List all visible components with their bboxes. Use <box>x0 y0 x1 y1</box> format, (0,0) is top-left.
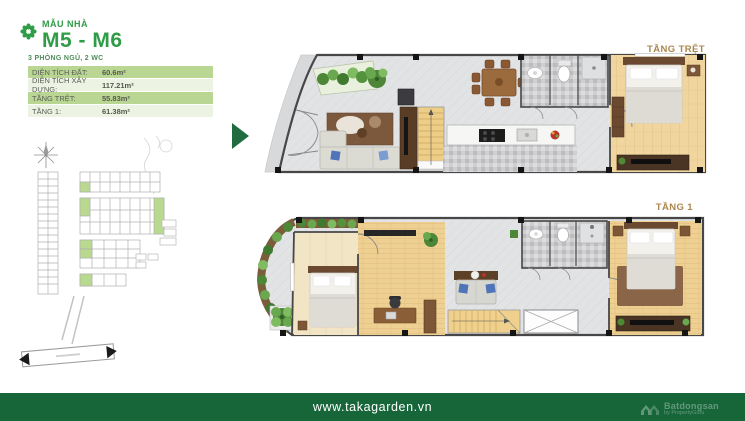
spec-row-first-floor: TẦNG 1: 61.38m² <box>28 105 213 117</box>
closet <box>424 300 436 333</box>
plot-strip-b <box>80 198 164 234</box>
spec-label: TẦNG TRỆT: <box>28 94 102 103</box>
plant <box>683 319 690 326</box>
highlighted-plot <box>80 198 90 216</box>
laptop <box>386 312 396 319</box>
spec-row-ground-floor: TẦNG TRỆT: 55.83m² <box>28 92 213 104</box>
entry-direction-arrow <box>232 123 249 149</box>
master-bedroom <box>609 221 701 335</box>
first-floor-label: TẦNG 1 <box>555 202 693 213</box>
plant <box>619 158 626 165</box>
nightstand <box>680 226 690 236</box>
pillow <box>656 68 678 79</box>
highlighted-plot <box>154 198 164 234</box>
nightstand <box>298 321 307 330</box>
first-floor-plan <box>256 216 707 340</box>
terrace-palm-plant <box>270 306 294 330</box>
toilet <box>558 66 570 82</box>
tv <box>404 117 408 155</box>
pillow <box>485 283 495 293</box>
compass-star-icon <box>34 142 58 168</box>
toilet <box>558 228 569 242</box>
spec-value: 61.38m² <box>102 107 130 116</box>
tv-media-wall <box>400 107 417 169</box>
header: MẪU NHÀ M5 - M6 3 PHÒNG NGỦ, 2 WC DIỆN T… <box>20 20 220 118</box>
spec-value: 60.6m² <box>102 68 126 77</box>
hallway <box>358 222 445 335</box>
tv <box>630 320 674 325</box>
window <box>635 54 685 57</box>
void-opening <box>524 310 578 333</box>
bed <box>308 266 358 327</box>
watermark-text: Batdongsan by PropertyGuru <box>664 402 719 417</box>
tv-cabinet <box>617 155 689 170</box>
footer-bar: www.takagarden.vn Batdongsan by Property… <box>0 393 745 421</box>
spec-table: DIỆN TÍCH ĐẤT: 60.6m² DIỆN TÍCH XÂY DỰNG… <box>28 66 213 117</box>
bed <box>624 222 678 289</box>
stairs <box>418 107 444 169</box>
plot-strip-a <box>80 172 160 192</box>
fridge <box>398 89 414 105</box>
kitchen <box>443 125 577 172</box>
pillow <box>330 150 340 160</box>
bedroom-2 <box>291 232 359 335</box>
brand-text: MẪU NHÀ M5 - M6 <box>42 20 123 51</box>
pillow <box>630 232 650 243</box>
tv-cabinet <box>616 316 690 331</box>
spec-value: 117.21m² <box>102 81 134 90</box>
highlighted-plot <box>80 240 92 249</box>
watermark-logo-icon <box>640 402 660 416</box>
plot-strip-c <box>80 240 140 268</box>
model-subtitle: 3 PHÒNG NGỦ, 2 WC <box>28 55 220 62</box>
plot-strip-d <box>80 274 126 286</box>
tv <box>631 159 671 164</box>
highlighted-plot <box>80 274 92 286</box>
logo-flower-icon <box>20 23 37 40</box>
spec-row-construction-area: DIỆN TÍCH XÂY DỰNG: 117.21m² <box>28 79 213 91</box>
access-road <box>18 296 117 367</box>
desk-chair <box>390 298 401 309</box>
highlighted-plot <box>80 249 92 258</box>
pillow <box>378 150 388 160</box>
pillow <box>458 283 468 293</box>
plant <box>618 319 625 326</box>
pillow <box>653 232 673 243</box>
site-map <box>16 134 184 386</box>
brand-row: MẪU NHÀ M5 - M6 <box>20 20 220 51</box>
window <box>291 263 295 291</box>
footer-url: www.takagarden.vn <box>313 400 432 414</box>
watermark-byline: by PropertyGuru <box>664 411 719 417</box>
spec-value: 55.83m² <box>102 94 130 103</box>
kitchen-floor <box>443 145 577 172</box>
plant <box>510 230 518 238</box>
tv-console <box>364 230 416 236</box>
highlighted-plot <box>80 182 90 192</box>
spec-label: DIỆN TÍCH XÂY DỰNG: <box>28 76 102 94</box>
lounge-sofa <box>454 271 498 304</box>
fruit-bowl <box>551 131 560 140</box>
model-title: M5 - M6 <box>42 30 123 51</box>
watermark: Batdongsan by PropertyGuru <box>640 402 719 417</box>
bed <box>623 57 685 123</box>
pillow <box>630 68 652 79</box>
ground-floor-plan <box>263 53 707 177</box>
page: { "header": { "logo_icon": "flower-pinwh… <box>0 0 745 421</box>
bedroom <box>610 54 705 172</box>
stairs <box>448 310 520 333</box>
spec-label: TẦNG 1: <box>28 107 102 116</box>
nightstand <box>613 226 623 236</box>
plot-strip-left <box>38 172 58 294</box>
pillow <box>313 276 330 286</box>
pillow <box>334 276 351 286</box>
